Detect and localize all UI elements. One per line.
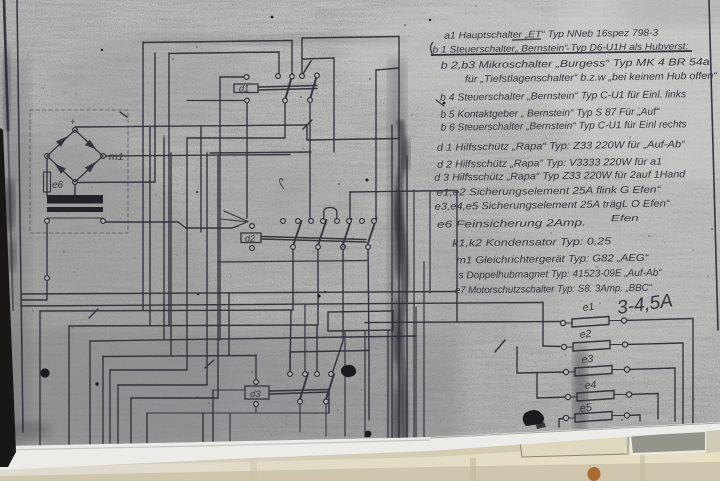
svg-text:+: +: [70, 117, 75, 127]
svg-text:e3: e3: [581, 353, 594, 366]
svg-text:e1: e1: [582, 301, 595, 314]
svg-text:e5: e5: [579, 402, 593, 415]
svg-text:Efen: Efen: [611, 213, 639, 223]
svg-text:e6: e6: [52, 180, 64, 191]
svg-text:k1,k2 Kondensator Typ: 0,25: k1,k2 Kondensator Typ: 0,25: [452, 236, 612, 249]
svg-text:d2: d2: [245, 234, 255, 244]
svg-text:m1: m1: [109, 151, 124, 163]
svg-text:e2: e2: [579, 328, 592, 341]
svg-text:e4: e4: [584, 379, 597, 392]
svg-text:8: 8: [341, 243, 346, 252]
svg-text:d3: d3: [250, 389, 261, 400]
svg-text:d1: d1: [239, 84, 249, 94]
svg-text:e6 Feinsicherung 2Amp.: e6 Feinsicherung 2Amp.: [437, 218, 586, 231]
